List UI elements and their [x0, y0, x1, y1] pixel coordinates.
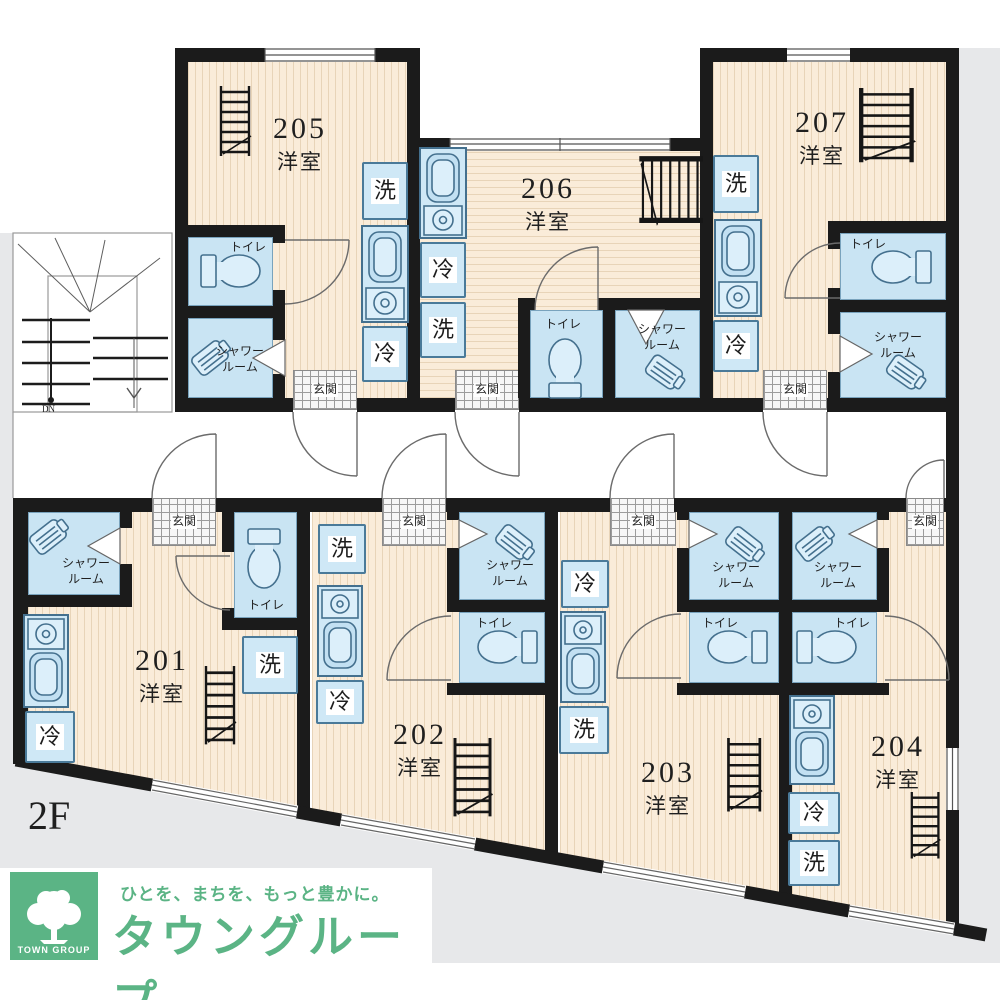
fridge-box: 冷 — [25, 711, 75, 763]
fridge-box: 冷 — [362, 326, 408, 382]
unit-204-number: 204 — [871, 730, 925, 764]
shower-room-label: シャワールーム — [486, 558, 534, 589]
shower-room-label: シャワールーム — [638, 322, 686, 353]
fridge-box: 冷 — [788, 792, 840, 834]
town-group-mark: TOWN GROUP — [10, 945, 98, 955]
unit-206-number: 206 — [521, 172, 575, 206]
shower-room-label: シャワールーム — [62, 556, 110, 587]
fridge-box: 冷 — [713, 320, 759, 372]
town-group-logo-band: TOWN GROUP ひとを、まちを、もっと豊かに。 タウングループ — [0, 868, 432, 964]
unit-202-number: 202 — [393, 718, 447, 752]
floorplan-2f: 玄関 玄関 玄関 玄関 玄関 玄関 玄関 — [0, 0, 1000, 1000]
washer-box: 洗 — [362, 162, 408, 220]
washer-box: 洗 — [788, 840, 840, 886]
washer-box: 洗 — [242, 636, 298, 694]
unit-202-type: 洋室 — [397, 752, 443, 782]
unit-205-type: 洋室 — [277, 146, 323, 176]
unit-203-number: 203 — [641, 756, 695, 790]
floor-label: 2F — [28, 792, 70, 839]
unit-203-type: 洋室 — [645, 790, 691, 820]
toilet-label: トイレ — [545, 317, 581, 333]
shower-room-label: シャワールーム — [712, 560, 760, 591]
washer-box: 洗 — [318, 524, 366, 574]
plan-linework — [0, 0, 1000, 1000]
unit-207-type: 洋室 — [799, 140, 845, 170]
unit-205-number: 205 — [273, 112, 327, 146]
unit-201-type: 洋室 — [139, 678, 185, 708]
toilet-label: トイレ — [850, 237, 886, 253]
logo-company-name: タウングループ — [112, 900, 432, 1000]
washer-box: 洗 — [713, 155, 759, 213]
shower-room-label: シャワールーム — [814, 560, 862, 591]
unit-206-type: 洋室 — [525, 206, 571, 236]
staircase-icon — [13, 233, 172, 498]
stairs-dn-label: DN — [42, 404, 55, 414]
fridge-box: 冷 — [420, 242, 466, 298]
shower-room-label: シャワールーム — [874, 330, 922, 361]
fridge-box: 冷 — [316, 680, 364, 724]
shower-room-label: シャワールーム — [216, 344, 264, 375]
unit-204-type: 洋室 — [875, 764, 921, 794]
toilet-label: トイレ — [702, 616, 738, 632]
town-group-logo: TOWN GROUP — [10, 872, 98, 960]
unit-207-number: 207 — [795, 106, 849, 140]
toilet-label: トイレ — [834, 616, 870, 632]
unit-201-number: 201 — [135, 644, 189, 678]
washer-box: 洗 — [559, 706, 609, 754]
fridge-box: 冷 — [561, 560, 609, 608]
toilet-label: トイレ — [230, 240, 266, 256]
toilet-label: トイレ — [248, 598, 284, 614]
washer-box: 洗 — [420, 302, 466, 358]
toilet-label: トイレ — [476, 616, 512, 632]
